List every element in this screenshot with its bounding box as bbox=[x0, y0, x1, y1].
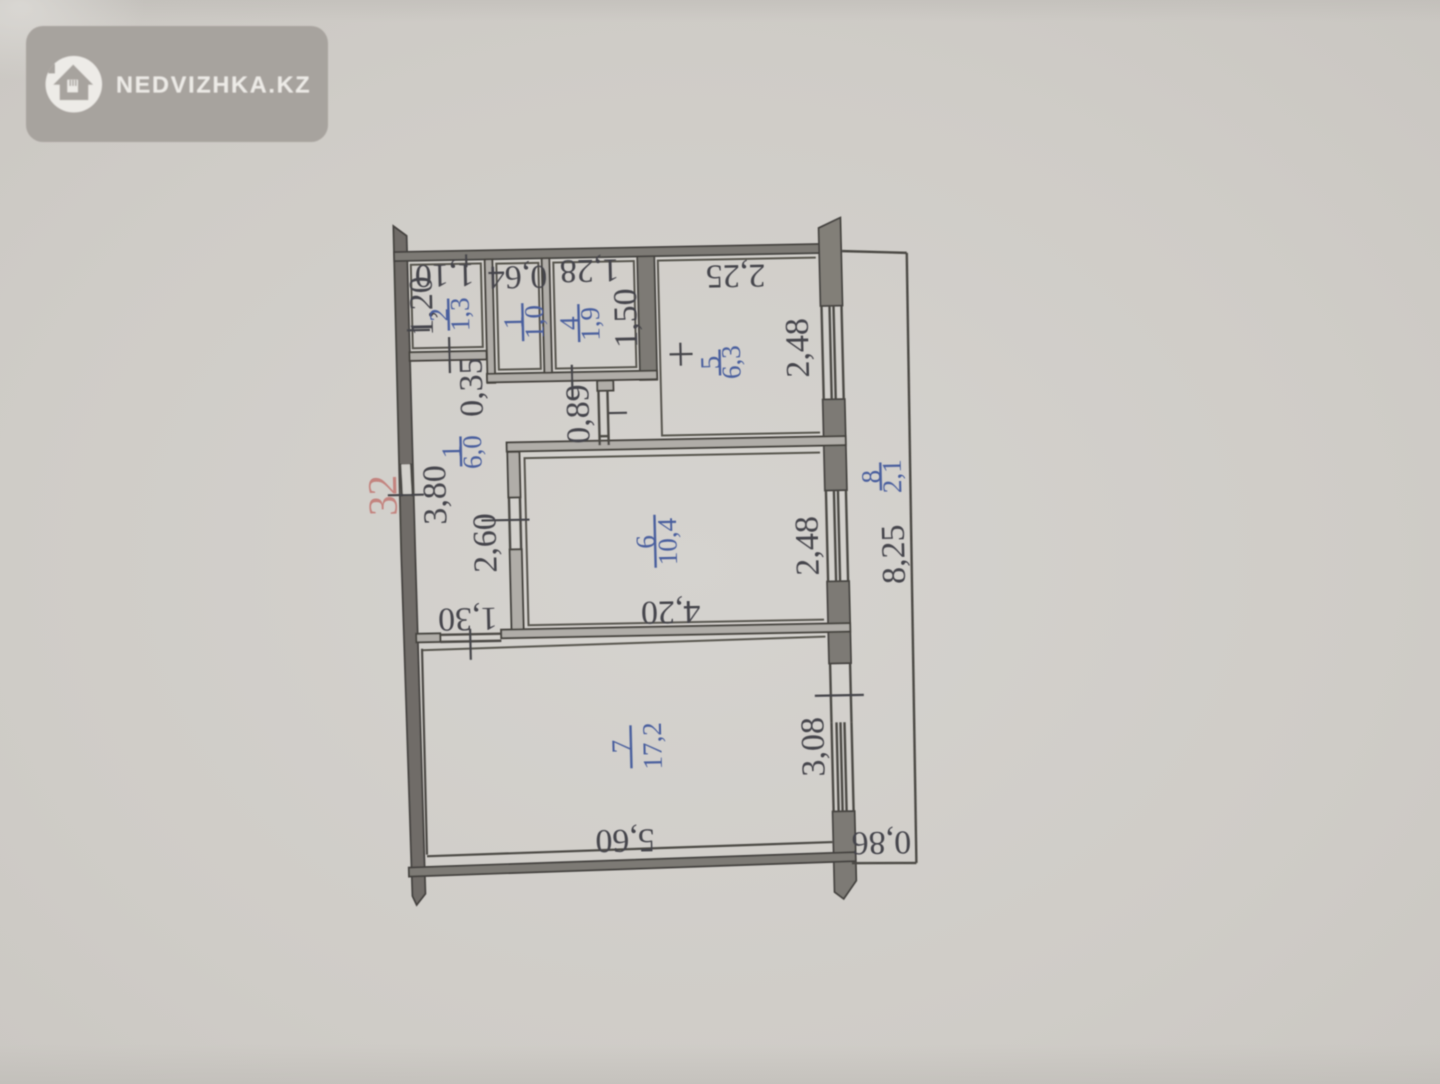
svg-text:2,48: 2,48 bbox=[779, 318, 817, 378]
svg-text:0,86: 0,86 bbox=[851, 823, 911, 861]
svg-text:32: 32 bbox=[359, 474, 406, 516]
svg-text:NEDVIZHKA.KZ: NEDVIZHKA.KZ bbox=[116, 72, 311, 98]
svg-text:1,9: 1,9 bbox=[575, 307, 606, 341]
svg-text:4,20: 4,20 bbox=[641, 593, 701, 631]
svg-text:17,2: 17,2 bbox=[637, 722, 668, 770]
svg-text:1,3: 1,3 bbox=[445, 297, 476, 331]
svg-text:5,60: 5,60 bbox=[595, 821, 655, 859]
svg-text:3,80: 3,80 bbox=[416, 465, 454, 525]
svg-text:1,50: 1,50 bbox=[607, 288, 645, 348]
svg-text:1,10: 1,10 bbox=[414, 256, 474, 294]
svg-text:7: 7 bbox=[606, 739, 636, 753]
svg-text:3,08: 3,08 bbox=[794, 717, 832, 777]
svg-text:2,48: 2,48 bbox=[788, 516, 826, 576]
svg-text:8,25: 8,25 bbox=[875, 524, 913, 584]
svg-text:2,1: 2,1 bbox=[877, 459, 908, 493]
svg-text:1,0: 1,0 bbox=[519, 305, 550, 339]
svg-text:6,0: 6,0 bbox=[457, 435, 488, 469]
svg-text:6,3: 6,3 bbox=[716, 345, 747, 379]
svg-text:0,89: 0,89 bbox=[559, 384, 597, 444]
svg-text:2,25: 2,25 bbox=[706, 257, 766, 295]
svg-text:0,64: 0,64 bbox=[487, 258, 547, 296]
svg-text:10,4: 10,4 bbox=[652, 517, 683, 565]
svg-text:2,60: 2,60 bbox=[466, 513, 504, 573]
svg-text:1,30: 1,30 bbox=[438, 600, 498, 638]
svg-text:0,35: 0,35 bbox=[452, 357, 490, 417]
svg-text:1,28: 1,28 bbox=[559, 251, 619, 289]
